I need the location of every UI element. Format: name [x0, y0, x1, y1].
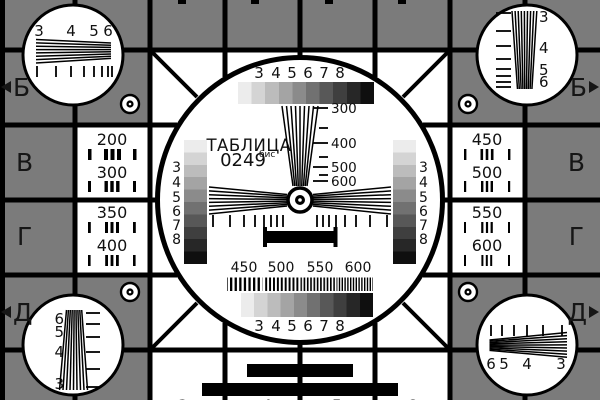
- wedge-label: 5: [54, 323, 64, 341]
- scale-digit: 6: [303, 317, 313, 335]
- row-letter-left: Г: [17, 222, 32, 251]
- row-letter-left: Б: [13, 73, 30, 102]
- wedge-frequency-label: 600: [331, 174, 357, 190]
- row-letter-left: Д: [13, 298, 33, 327]
- card-number-suffix: бис: [259, 150, 275, 160]
- scale-digit: 6: [303, 64, 313, 82]
- scale-digit: 7: [319, 64, 329, 82]
- left-step-column-labels: 3 4 5 6 7 8: [172, 160, 181, 248]
- resolution-value: 300: [97, 163, 128, 182]
- row-letter-left: В: [16, 148, 33, 177]
- bullseye-top-left: [121, 95, 139, 113]
- partial-digit: 4: [262, 396, 272, 400]
- resolution-value: 200: [97, 130, 128, 149]
- wedge-label: 6: [486, 355, 496, 373]
- wedge-label: 6: [103, 22, 113, 40]
- row-letter-right: Г: [569, 222, 584, 251]
- wedge-label: 3: [539, 8, 549, 26]
- scale-digit: 4: [172, 175, 181, 191]
- row-letter-right: В: [568, 148, 585, 177]
- wedge-label: 4: [66, 22, 76, 40]
- wedge-label: 4: [522, 355, 532, 373]
- scale-digit: 3: [419, 160, 428, 176]
- resolution-value: 400: [97, 236, 128, 255]
- frequency-label: 550: [307, 260, 334, 276]
- bullseye-bottom-right: [459, 283, 477, 301]
- partial-digit: 3: [178, 396, 188, 400]
- wedge-label: 5: [89, 22, 99, 40]
- bottom-grayscale-bar: [241, 293, 373, 317]
- scale-digit: 3: [254, 317, 264, 335]
- test-card-svg: 3 4 5 6 3 4 5 6: [0, 0, 600, 400]
- scale-digit: 8: [172, 232, 181, 248]
- resolution-value: 350: [97, 203, 128, 222]
- row-letter-right: Б: [570, 73, 587, 102]
- scale-digit: 5: [287, 64, 297, 82]
- bullseye-top-right: [459, 95, 477, 113]
- wedge-label: 4: [539, 39, 549, 57]
- wedge-label: 3: [54, 375, 64, 393]
- resolution-value: 550: [472, 203, 503, 222]
- center-bullseye: [288, 188, 312, 212]
- scale-digit: 3: [172, 160, 181, 176]
- wedge-frequency-label: 400: [331, 136, 357, 152]
- scale-digit: 4: [271, 317, 281, 335]
- wedge-frequency-label: 300: [331, 101, 357, 117]
- wedge-label: 5: [499, 355, 509, 373]
- scale-digit: 8: [419, 232, 428, 248]
- scale-digit: 5: [287, 317, 297, 335]
- partial-digit: 6: [407, 396, 417, 400]
- scale-digit: 7: [319, 317, 329, 335]
- right-step-column-labels: 3 4 5 6 7 8: [419, 160, 428, 248]
- scale-digit: 4: [419, 175, 428, 191]
- resolution-value: 450: [472, 130, 503, 149]
- wedge-label: 6: [539, 73, 549, 91]
- right-step-column: [393, 140, 416, 264]
- scale-digit: 8: [335, 64, 345, 82]
- scale-digit: 4: [271, 64, 281, 82]
- tv-test-card: 3 4 5 6 3 4 5 6: [0, 0, 600, 400]
- left-step-column: [184, 140, 207, 264]
- wedge-label: 3: [34, 22, 44, 40]
- scale-digit: 8: [335, 317, 345, 335]
- resolution-value: 600: [472, 236, 503, 255]
- partial-digit: 5: [332, 396, 342, 400]
- frequency-label: 500: [268, 260, 295, 276]
- bullseye-bottom-left: [121, 283, 139, 301]
- scale-digit: 3: [254, 64, 264, 82]
- resolution-value: 500: [472, 163, 503, 182]
- row-letter-right: Д: [567, 298, 587, 327]
- frequency-label: 450: [231, 260, 258, 276]
- frequency-label: 600: [345, 260, 372, 276]
